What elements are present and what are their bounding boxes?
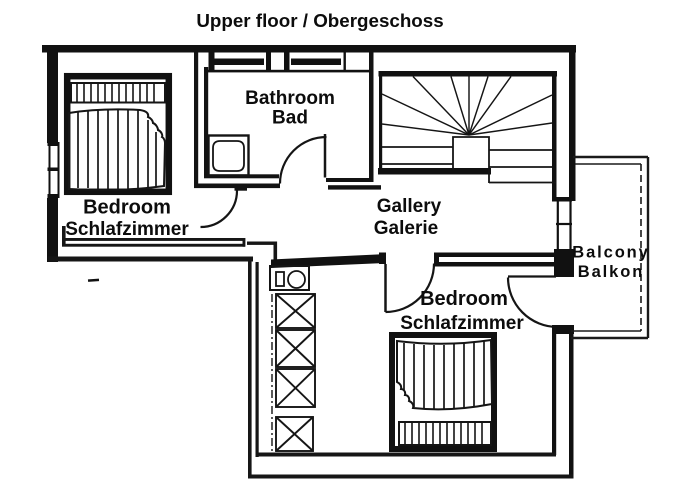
svg-text:Upper floor / Obergeschoss: Upper floor / Obergeschoss [196,10,443,31]
svg-text:Bad: Bad [272,108,308,129]
svg-text:Balkon: Balkon [578,263,644,281]
svg-text:Schlafzimmer: Schlafzimmer [400,313,524,334]
svg-text:Bedroom: Bedroom [83,197,171,219]
svg-text:Bathroom: Bathroom [245,88,335,109]
svg-text:Gallery: Gallery [377,196,442,217]
svg-text:Bedroom: Bedroom [420,288,508,310]
svg-text:Schlafzimmer: Schlafzimmer [65,219,189,240]
svg-text:Galerie: Galerie [374,218,438,239]
svg-text:Balcony: Balcony [572,244,650,262]
